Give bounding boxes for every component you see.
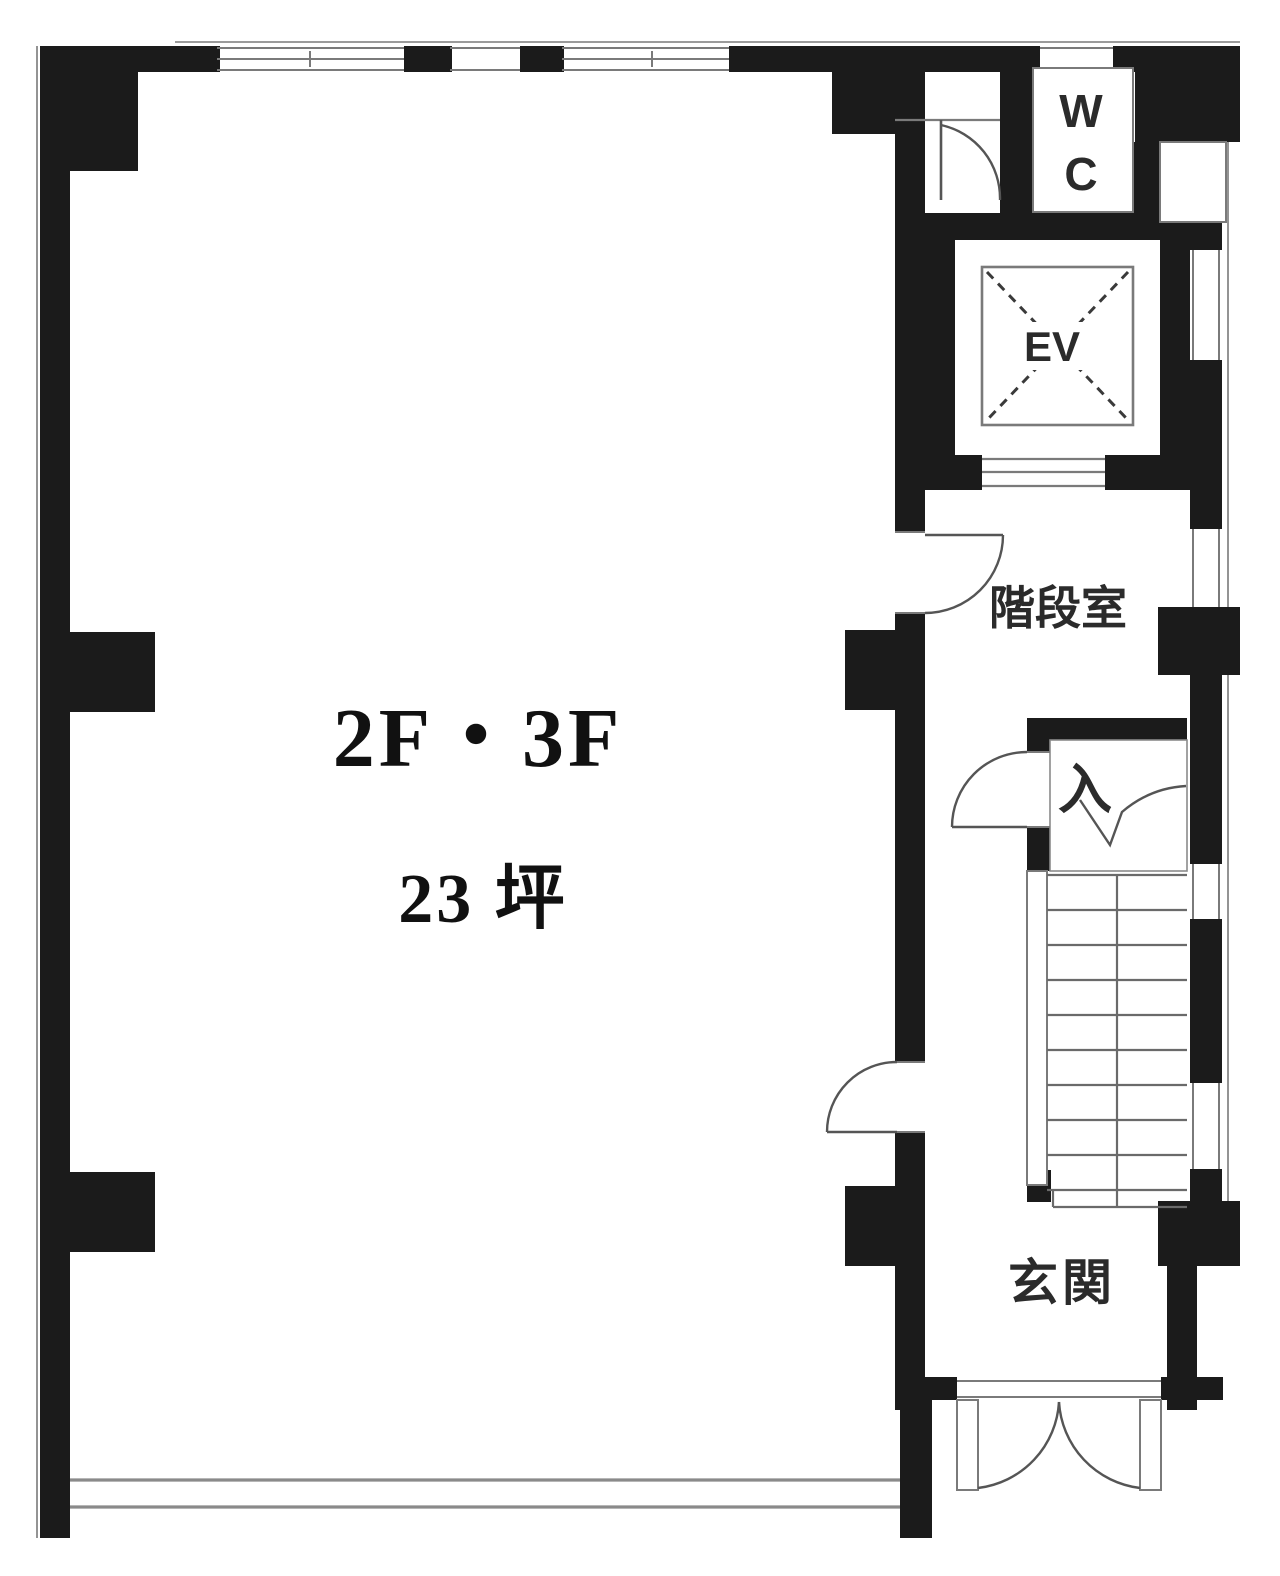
- entrance-double-door: [957, 1381, 1161, 1490]
- entry-label: 入: [1058, 760, 1112, 820]
- top-right-corner-column: [1135, 46, 1240, 142]
- window-beside-stairs-lower: [1193, 1083, 1219, 1169]
- stairwell-door: [895, 532, 1003, 613]
- left-pilaster-upper: [70, 632, 155, 712]
- window-band-2: [450, 48, 520, 70]
- main-room-door-arc: [827, 1062, 897, 1132]
- wc-label-line1: W: [1059, 85, 1103, 137]
- entrance-door-right-leaf: [1140, 1400, 1161, 1490]
- wc-door-arc: [941, 125, 1000, 200]
- window-band-3: [562, 48, 729, 70]
- entry-door-arc: [952, 752, 1027, 827]
- core-pilaster-upper: [845, 630, 925, 710]
- floor-plan: EV: [0, 0, 1280, 1576]
- right-pilaster-lower: [1158, 1201, 1240, 1266]
- stair-stringer: [1027, 871, 1047, 1185]
- entrance-door-left-leaf: [957, 1400, 978, 1490]
- entrance-door-right-arc: [1059, 1402, 1140, 1488]
- floor-plan-drawing: EV: [0, 0, 1280, 1576]
- floor-label: 2F・3F: [333, 692, 624, 785]
- storefront-end-wall: [900, 1377, 932, 1538]
- entrance-door-left-arc: [978, 1402, 1059, 1488]
- area-label: 23 坪: [398, 861, 568, 938]
- left-wall: [40, 46, 70, 1538]
- core-pilaster-lower: [845, 1186, 925, 1266]
- window-above-wc: [1040, 48, 1113, 70]
- main-room-door: [827, 1062, 925, 1132]
- window-beside-ev: [1193, 250, 1219, 360]
- window-beside-wc: [1160, 142, 1226, 222]
- storefront-glazing: [70, 1480, 900, 1507]
- wc-label-line2: C: [1064, 148, 1097, 200]
- left-pilaster-lower: [70, 1172, 155, 1252]
- entrance-label: 玄関: [1008, 1255, 1116, 1311]
- stairwell-label: 階段室: [989, 582, 1127, 634]
- window-beside-stairwell: [1193, 529, 1219, 607]
- elevator-label: EV: [1024, 323, 1080, 370]
- window-band-1: [217, 48, 404, 70]
- staircase: [1027, 871, 1187, 1207]
- right-pilaster-upper: [1158, 607, 1240, 675]
- core-wall: [895, 72, 925, 532]
- window-beside-stairs-upper: [1193, 864, 1219, 919]
